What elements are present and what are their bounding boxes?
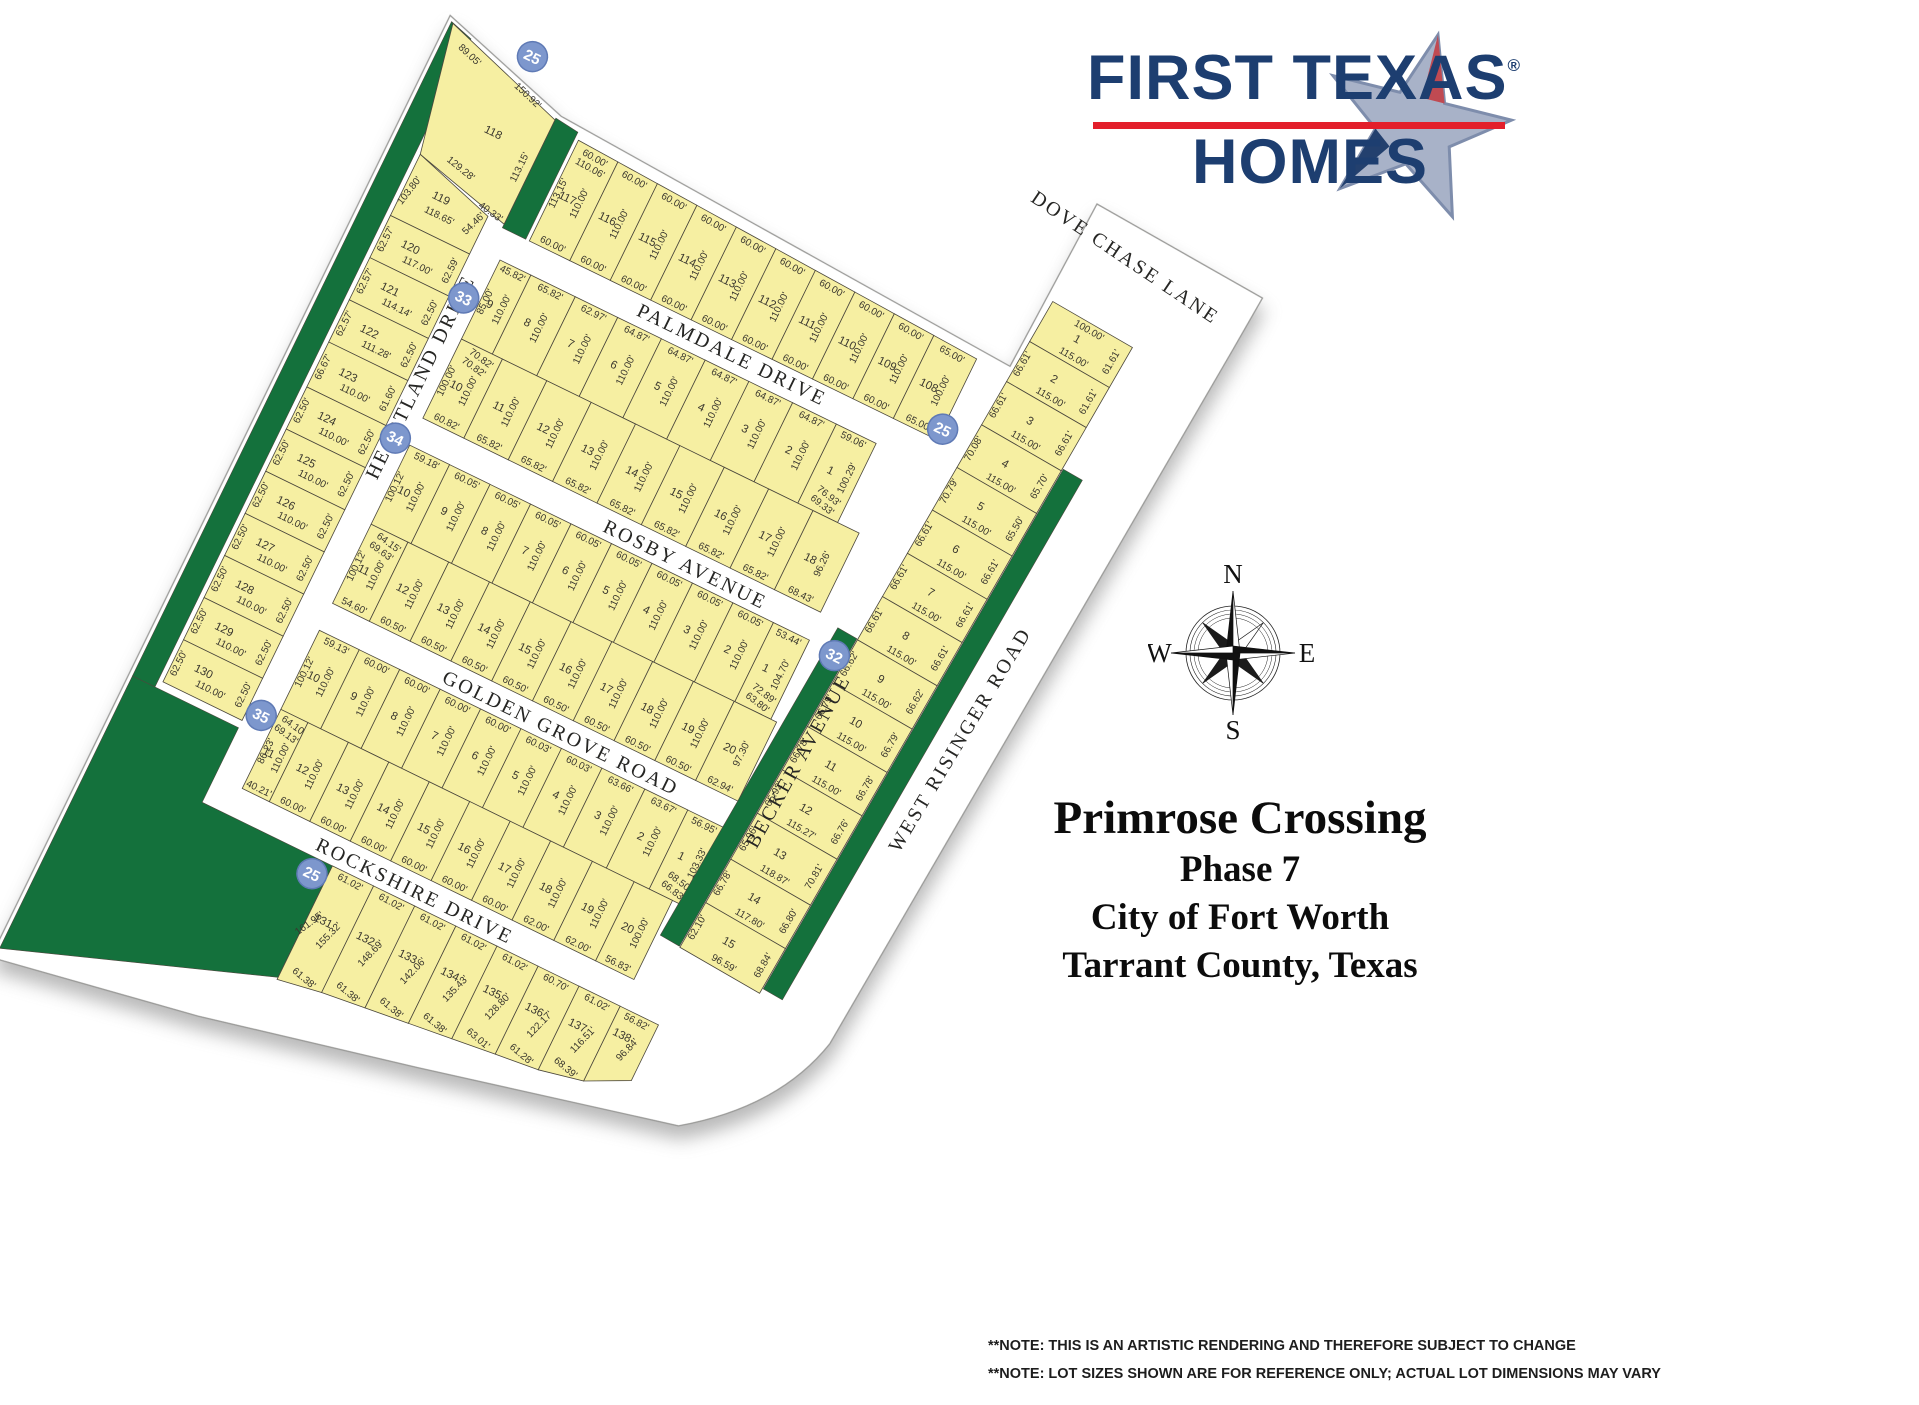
registered-mark: ® [1508, 56, 1522, 75]
note-line-2: **NOTE: LOT SIZES SHOWN ARE FOR REFERENC… [988, 1360, 1661, 1388]
phase: Phase 7 [1000, 846, 1480, 894]
logo-line2: HOMES [1175, 126, 1445, 198]
first-texas-homes-logo: FIRST TEXAS® HOMES [1075, 34, 1545, 219]
compass-s: S [1225, 715, 1240, 745]
logo-line1: FIRST TEXAS® [1087, 42, 1527, 114]
compass-rose: N E S W [1148, 556, 1318, 746]
county: Tarrant County, Texas [1000, 942, 1480, 990]
note-line-1: **NOTE: THIS IS AN ARTISTIC RENDERING AN… [988, 1332, 1661, 1360]
notes: **NOTE: THIS IS AN ARTISTIC RENDERING AN… [988, 1332, 1661, 1388]
page: 117110.00'60.00'60.00'113.15'110.06'1161… [0, 0, 1919, 1405]
plat-map: 117110.00'60.00'60.00'113.15'110.06'1161… [0, 0, 1919, 1405]
city: City of Fort Worth [1000, 894, 1480, 942]
compass-w: W [1148, 638, 1172, 668]
title-block: Primrose Crossing Phase 7 City of Fort W… [1000, 790, 1480, 990]
compass-cardinal-points [1171, 591, 1295, 715]
subdivision-name: Primrose Crossing [1000, 790, 1480, 846]
compass-n: N [1223, 559, 1243, 589]
compass-e: E [1299, 638, 1316, 668]
